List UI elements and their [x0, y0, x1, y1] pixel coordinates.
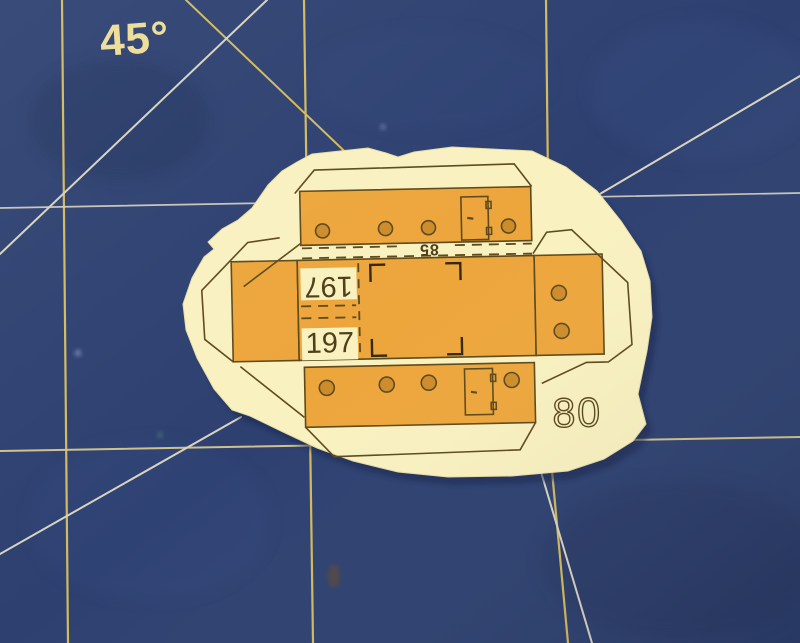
- photo-papercraft-on-cutting-mat: 45° 85 197 197: [0, 0, 800, 643]
- lighting-overlay: [0, 0, 800, 643]
- photo-canvas: 45° 85 197 197: [0, 0, 800, 643]
